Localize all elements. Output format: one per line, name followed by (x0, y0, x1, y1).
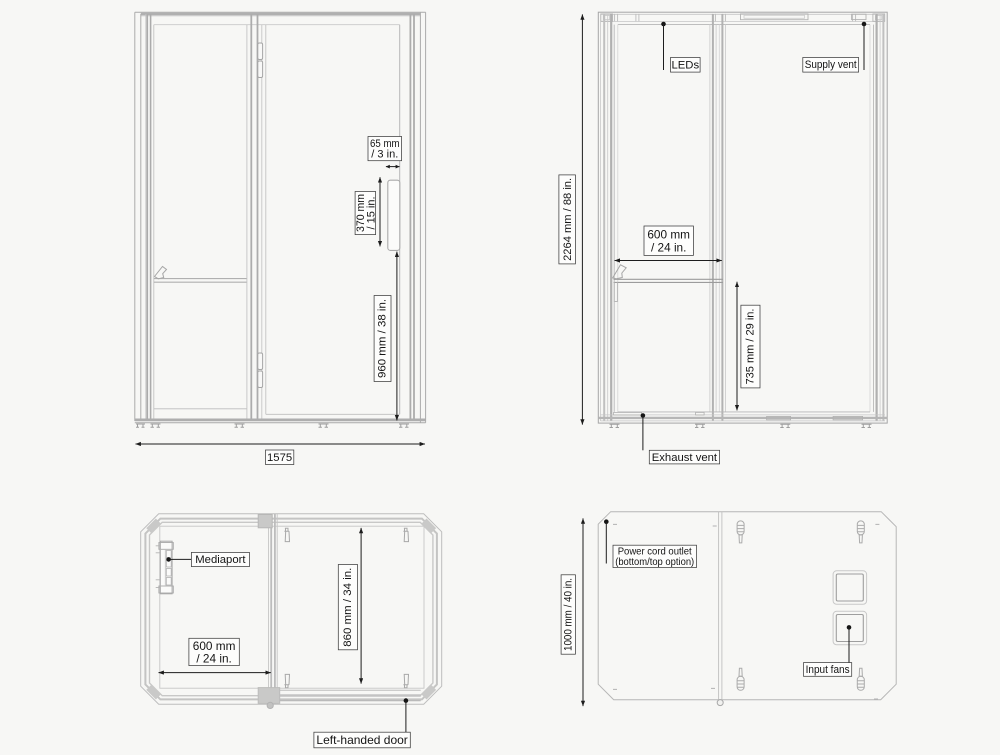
svg-text:735 mm / 29 in.: 735 mm / 29 in. (745, 309, 757, 385)
svg-text:Left-handed door: Left-handed door (316, 733, 407, 747)
svg-text:Exhaust vent: Exhaust vent (652, 452, 718, 464)
svg-text:960 mm / 38 in.: 960 mm / 38 in. (377, 299, 389, 378)
svg-text:1575: 1575 (267, 452, 292, 464)
svg-text:860 mm / 34 in.: 860 mm / 34 in. (342, 568, 354, 647)
svg-text:(bottom/top option): (bottom/top option) (615, 557, 694, 568)
svg-text:Mediaport: Mediaport (195, 554, 246, 566)
svg-text:2264 mm / 88 in.: 2264 mm / 88 in. (562, 178, 574, 261)
svg-text:370 mm/ 15 in.: 370 mm/ 15 in. (355, 194, 377, 232)
svg-text:Supply vent: Supply vent (805, 59, 858, 71)
svg-text:Input fans: Input fans (806, 664, 850, 676)
svg-text:1000 mm / 40 in.: 1000 mm / 40 in. (563, 578, 575, 651)
svg-text:600 mm: 600 mm (647, 228, 690, 242)
svg-text:/ 24 in.: / 24 in. (651, 241, 686, 255)
svg-text:/ 3 in.: / 3 in. (371, 149, 398, 161)
svg-text:LEDs: LEDs (671, 59, 699, 71)
svg-text:/ 24 in.: / 24 in. (196, 652, 231, 666)
